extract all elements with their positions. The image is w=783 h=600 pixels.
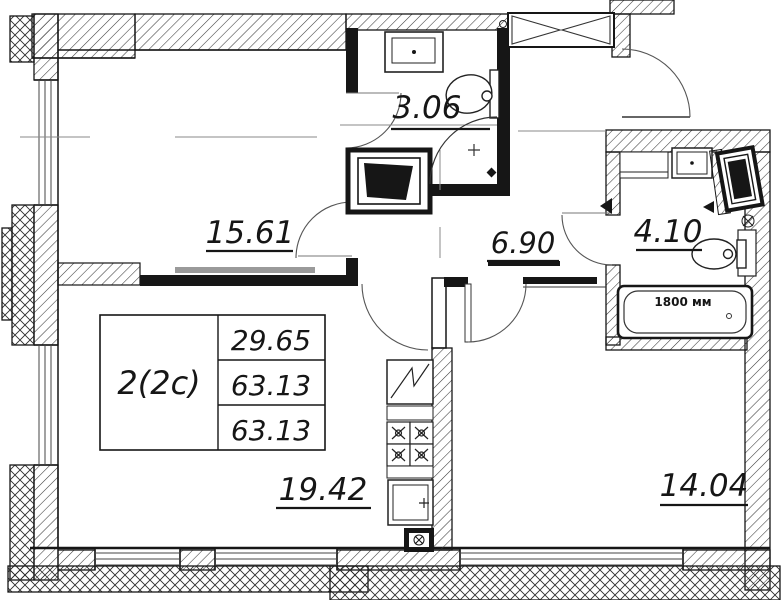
floor-plan-drawing: 1800 мм 15.61 3.06 xyxy=(0,0,783,600)
furniture-track-living xyxy=(175,267,315,273)
insulation-left-pier xyxy=(12,205,34,345)
window-bottom-kitchen-2 xyxy=(215,553,337,565)
window-left-lower xyxy=(39,345,51,465)
entry-door-arc xyxy=(622,49,690,117)
wall-left-lower xyxy=(34,465,58,580)
bathtub-icon: 1800 мм xyxy=(618,286,752,338)
room-label-living: 15.61 xyxy=(206,215,295,251)
floor-plan: 1800 мм 15.61 3.06 xyxy=(0,0,783,600)
insulation-left-bottom xyxy=(10,465,34,580)
door-kitchen-living xyxy=(362,284,428,350)
wall-top-entry-right xyxy=(610,0,674,14)
sink-wc-icon xyxy=(385,32,443,72)
unit-area-1: 29.65 xyxy=(231,324,311,357)
room-label-hall: 6.90 xyxy=(491,226,556,260)
washing-machine-bath-icon xyxy=(717,147,763,210)
wall-hall-bedroom xyxy=(523,277,597,284)
wall-wc-left-top xyxy=(346,28,358,93)
wall-living-kitchen-hatched xyxy=(58,263,140,285)
insulation-bottom-left xyxy=(8,566,368,592)
wall-left-upper xyxy=(34,14,58,80)
wall-top-main xyxy=(135,14,346,50)
counter-kitchen-1 xyxy=(387,406,433,420)
insulation-left-top xyxy=(10,16,34,62)
unit-area-2: 63.13 xyxy=(231,369,311,402)
unit-area-3: 63.13 xyxy=(231,414,311,447)
stove-icon xyxy=(387,422,433,466)
insulation-left-pier-bump xyxy=(2,228,12,320)
washing-machine-wc-icon xyxy=(348,150,430,212)
wall-wc-left-bottom xyxy=(346,258,358,286)
kitchen-fixtures xyxy=(387,360,433,525)
window-bottom-bedroom xyxy=(460,553,683,565)
window-bottom-kitchen-1 xyxy=(95,553,180,565)
room-label-kitchen: 19.42 xyxy=(279,472,368,508)
unit-info-table: 2(2c) 29.65 63.13 63.13 xyxy=(100,315,325,450)
counter-kitchen-2 xyxy=(387,466,433,478)
wall-kitchen-bedroom xyxy=(432,348,452,550)
door-bedroom xyxy=(465,284,526,342)
room-label-bathroom: 4.10 xyxy=(633,214,702,250)
insulation-bottom-right xyxy=(330,566,780,600)
sink-bath-icon xyxy=(672,148,712,178)
wall-stub-doorway xyxy=(432,278,446,348)
unit-type-label: 2(2c) xyxy=(117,364,200,402)
wall-living-kitchen xyxy=(140,275,350,286)
room-label-bedroom: 14.04 xyxy=(660,468,749,504)
door-living xyxy=(296,202,352,258)
counter-bath xyxy=(620,152,668,178)
wall-corner-stub xyxy=(444,277,468,287)
entry-door xyxy=(508,13,690,117)
wall-wc-bottom xyxy=(420,184,510,196)
wall-top-wc xyxy=(346,14,510,30)
door-bathroom xyxy=(562,213,612,265)
fridge-icon xyxy=(387,360,433,404)
sink-kitchen-icon xyxy=(388,480,433,525)
room-label-wc: 3.06 xyxy=(392,90,461,126)
bathtub-length-label: 1800 мм xyxy=(654,295,711,309)
vent-marker-bath xyxy=(703,201,714,213)
wall-left-pier xyxy=(34,205,58,345)
window-left-upper xyxy=(39,80,51,205)
wall-right xyxy=(745,152,770,590)
